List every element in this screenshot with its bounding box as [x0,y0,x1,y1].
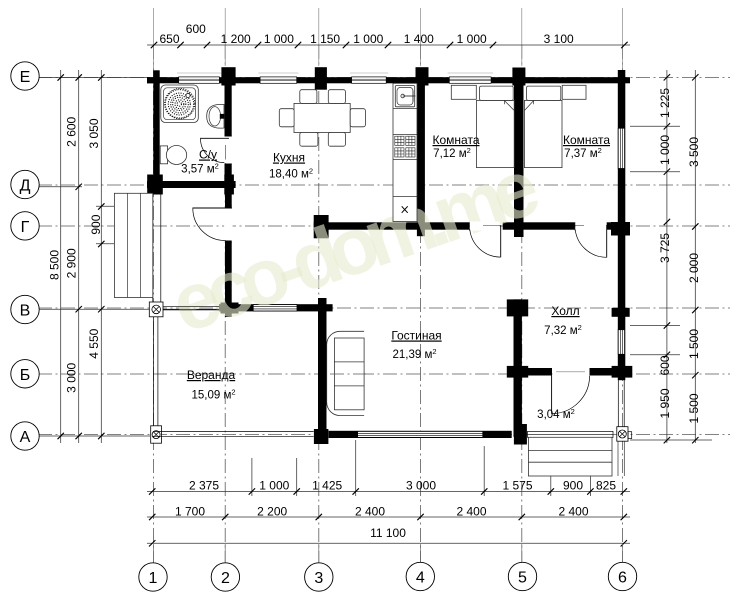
svg-text:1 500: 1 500 [687,393,701,423]
svg-text:15,09 м2: 15,09 м2 [191,388,235,402]
svg-text:2 000: 2 000 [687,253,701,283]
svg-text:Д: Д [20,178,31,195]
svg-text:5: 5 [518,570,527,587]
svg-text:2 400: 2 400 [355,504,385,518]
svg-text:3,57 м2: 3,57 м2 [181,162,219,176]
svg-text:1 225: 1 225 [658,88,672,118]
svg-text:1 000: 1 000 [457,32,487,46]
svg-text:1 425: 1 425 [312,479,342,493]
svg-text:600: 600 [658,355,672,375]
svg-text:3 100: 3 100 [544,32,574,46]
svg-text:2 200: 2 200 [257,504,287,518]
svg-text:2 375: 2 375 [189,479,219,493]
svg-text:1 200: 1 200 [221,32,251,46]
svg-text:Комната: Комната [433,133,480,147]
svg-text:А: А [20,429,31,446]
svg-text:4 550: 4 550 [87,328,101,358]
svg-text:7,32 м2: 7,32 м2 [544,323,582,337]
svg-text:650: 650 [159,32,179,46]
svg-text:3 725: 3 725 [658,233,672,263]
svg-text:4: 4 [416,570,425,587]
svg-text:1 575: 1 575 [502,479,532,493]
svg-text:11 100: 11 100 [370,526,406,540]
svg-text:1: 1 [149,570,158,587]
svg-text:1 150: 1 150 [310,32,340,46]
svg-text:900: 900 [563,479,583,493]
svg-text:6: 6 [618,570,627,587]
svg-text:1 500: 1 500 [687,329,701,359]
svg-text:2 900: 2 900 [65,248,79,278]
svg-text:В: В [20,303,31,320]
svg-text:Гостиная: Гостиная [391,329,441,343]
svg-text:600: 600 [186,22,206,36]
svg-text:3: 3 [314,570,323,587]
svg-text:7,37 м2: 7,37 м2 [564,146,602,160]
svg-text:Комната: Комната [563,133,610,147]
svg-text:2 600: 2 600 [65,116,79,146]
svg-text:1 000: 1 000 [264,32,294,46]
svg-text:С/у: С/у [199,148,217,162]
svg-text:3 050: 3 050 [87,118,101,148]
svg-text:2 400: 2 400 [558,504,588,518]
svg-text:3 000: 3 000 [406,479,436,493]
svg-text:1 950: 1 950 [658,388,672,418]
svg-text:900: 900 [89,214,103,234]
svg-text:3 000: 3 000 [65,362,79,392]
svg-text:825: 825 [596,479,616,493]
svg-text:2 400: 2 400 [456,504,486,518]
svg-text:Веранда: Веранда [187,368,236,382]
svg-text:Холл: Холл [551,304,579,318]
svg-text:8 500: 8 500 [47,250,61,280]
svg-text:2: 2 [221,570,230,587]
svg-text:1 700: 1 700 [175,504,205,518]
svg-text:1 000: 1 000 [658,135,672,165]
svg-text:1 000: 1 000 [353,32,383,46]
svg-text:21,39 м2: 21,39 м2 [392,347,436,361]
svg-text:1 400: 1 400 [404,32,434,46]
svg-text:7,12 м2: 7,12 м2 [433,146,471,160]
svg-text:Е: Е [20,69,31,86]
svg-text:1 000: 1 000 [259,479,289,493]
svg-text:18,40 м2: 18,40 м2 [269,167,313,181]
svg-text:3 500: 3 500 [687,137,701,167]
svg-text:Кухня: Кухня [273,151,305,165]
svg-text:3,04 м2: 3,04 м2 [537,407,575,421]
svg-text:Г: Г [21,219,30,236]
svg-text:Б: Б [20,367,31,384]
